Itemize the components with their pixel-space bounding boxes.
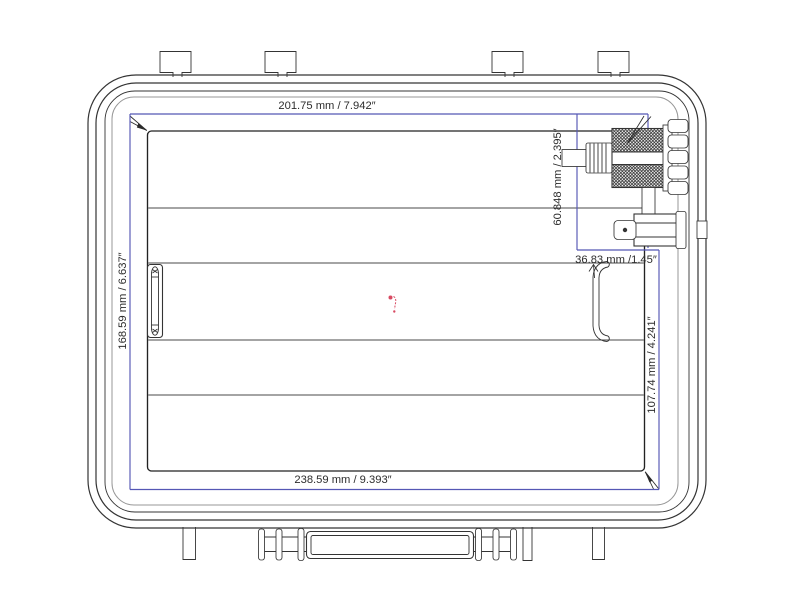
- corner-leader-top-left: [130, 116, 147, 131]
- hinge-tab-1: [160, 52, 191, 78]
- hex-shank: [562, 150, 586, 167]
- case-inner-opening: [148, 131, 645, 471]
- square-drive-adapter: [614, 188, 686, 249]
- technical-drawing-canvas[interactable]: 201.75 mm / 7.942″ 168.59 mm / 6.637″ 60…: [0, 0, 792, 612]
- hinge-tabs: [160, 52, 629, 78]
- dimension-label-bottom: 238.59 mm / 9.393″: [294, 474, 391, 486]
- interior-handle-right: [593, 262, 609, 342]
- latch-lug-right: [593, 527, 605, 560]
- dimension-label-top: 201.75 mm / 7.942″: [278, 100, 375, 112]
- dimension-label-tool-width: 36.83 mm /1.45″: [575, 254, 657, 266]
- hinge-tab-2: [265, 52, 296, 78]
- lid-stay-tab: [697, 221, 707, 239]
- interior-latch-left: [148, 265, 163, 338]
- latch-lug-mid: [523, 527, 532, 561]
- dimension-label-right: 107.74 mm / 4.241″: [646, 316, 658, 413]
- hinge-tab-4: [598, 52, 629, 78]
- carry-handle: [259, 529, 517, 561]
- dimension-lines: [130, 114, 659, 490]
- red-annotation-marker: [389, 296, 396, 313]
- ribbed-collar: [586, 143, 612, 173]
- dimension-label-tool-height: 60.848 mm / 2.395″: [552, 128, 564, 225]
- crown-nut: [663, 120, 688, 195]
- knurled-body: [612, 129, 667, 188]
- drawing-page: 201.75 mm / 7.942″ 168.59 mm / 6.637″ 60…: [0, 0, 792, 612]
- hinge-tab-3: [492, 52, 523, 78]
- corner-leader-bottom-right: [645, 472, 658, 489]
- hole-saw-arbor: [562, 116, 688, 249]
- latch-lug-left: [183, 527, 196, 560]
- dimension-label-left: 168.59 mm / 6.637″: [117, 252, 129, 349]
